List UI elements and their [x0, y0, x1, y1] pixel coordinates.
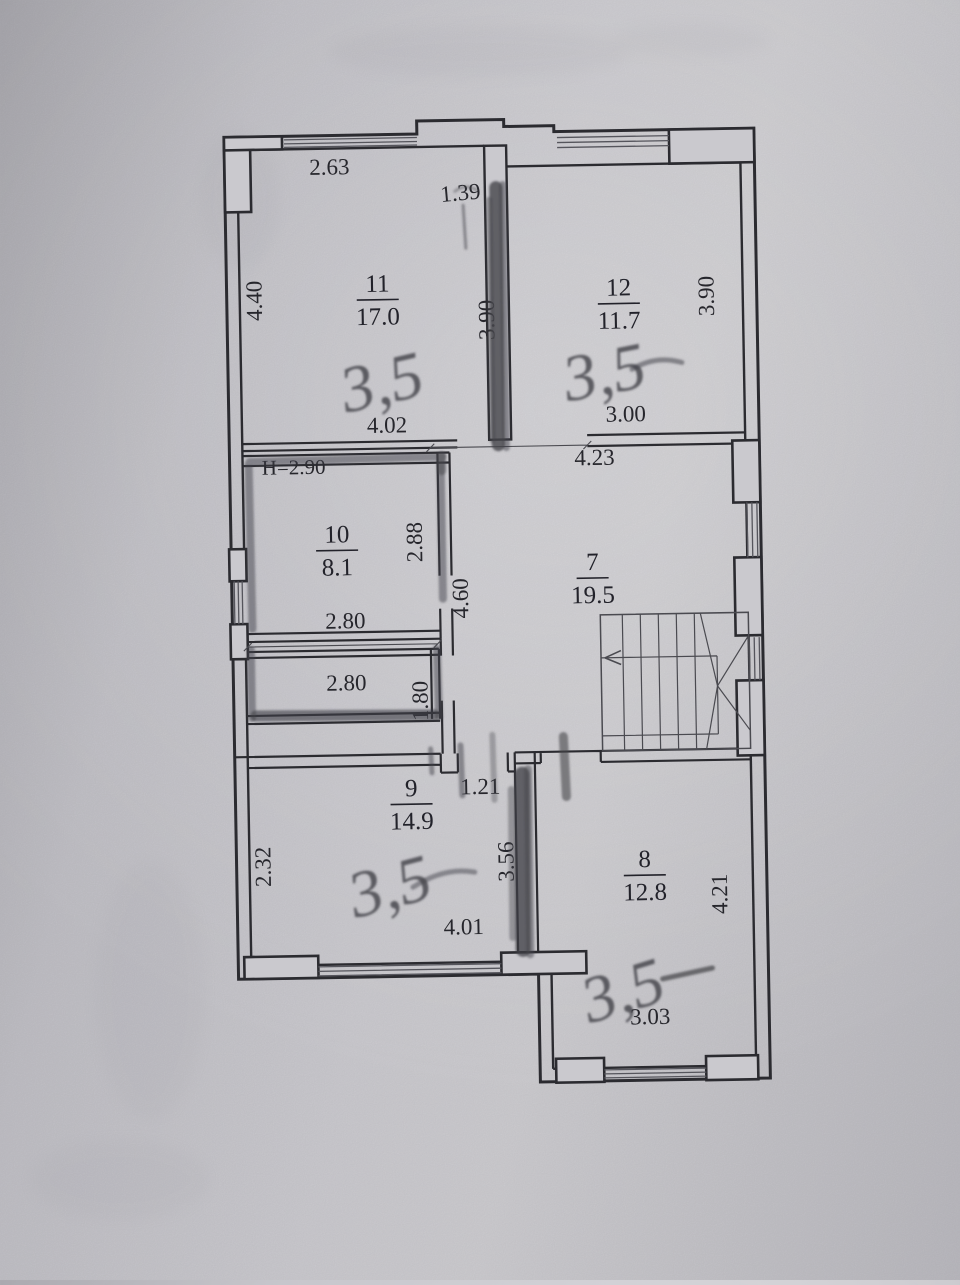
dim-top-niche-width: 1.39	[439, 179, 481, 207]
room-7-number: 7	[586, 549, 599, 576]
room-10-area: 8.1	[322, 554, 354, 582]
pencil-smudge-wall-11-12	[502, 185, 508, 448]
room-11-fraction-bar	[357, 299, 399, 300]
dim-room10-right-height: 2.88	[402, 522, 428, 563]
dim-hall-height: 4.60	[448, 578, 474, 619]
pencil-stroke	[431, 749, 432, 773]
dim-room12-right-height: 3.90	[693, 276, 719, 317]
room-10-number: 10	[324, 521, 349, 548]
pier	[230, 624, 248, 659]
pier	[706, 1055, 758, 1080]
room-9-fraction-bar	[391, 804, 433, 805]
dim-room9-bottom-width: 4.01	[443, 914, 484, 940]
floor-plan-svg: 2.63 1.39 4.40 3.90 4.02 3.90 3.00 4.23 …	[0, 0, 960, 1280]
dim-room11-left-height: 4.40	[241, 281, 267, 322]
pier	[556, 1058, 604, 1083]
dim-room10-bottom-width: 2.80	[325, 608, 366, 634]
dim-room9-left-height: 2.32	[250, 846, 276, 887]
pencil-smudge-wall-9-8	[510, 789, 514, 937]
pier	[224, 136, 282, 150]
pencil-trace-closet-bottom	[256, 713, 434, 718]
pencil-stroke	[563, 737, 566, 797]
room-11-number: 11	[365, 271, 390, 298]
pencil-stroke	[461, 745, 463, 795]
pencil-note-room12: 3,5	[556, 329, 652, 417]
room-9-number: 9	[405, 775, 418, 802]
room-12-number: 12	[606, 274, 631, 301]
dim-hall-top-width: 4.23	[574, 445, 615, 471]
room-8-fraction-bar	[624, 875, 666, 876]
pier	[229, 549, 247, 581]
pencil-smudge-wall-11-12	[488, 200, 493, 440]
room-8-area: 12.8	[623, 879, 667, 907]
room-8-number: 8	[638, 846, 651, 873]
dim-room8-right-height: 4.21	[707, 874, 733, 915]
pier	[669, 128, 755, 163]
room-7-fraction-bar	[577, 578, 609, 579]
pencil-trace-room10	[249, 464, 253, 629]
dim-room11-top-width: 2.63	[309, 154, 350, 180]
room-11-area: 17.0	[356, 303, 400, 331]
pencil-stroke	[492, 735, 494, 800]
room-10-fraction-bar	[316, 550, 358, 551]
pencil-trace-closet	[251, 650, 252, 718]
pier	[732, 440, 760, 502]
room-7-area: 19.5	[571, 582, 615, 610]
pier	[244, 956, 318, 979]
dim-closet-width: 2.80	[326, 670, 367, 696]
pencil-smudge-wall-11-12	[494, 188, 500, 445]
room-9-area: 14.9	[390, 808, 434, 836]
pencil-trace-closet	[437, 649, 439, 717]
pencil-trace-room10	[440, 457, 442, 599]
room-12-fraction-bar	[598, 303, 640, 304]
floor-plan-photo: 2.63 1.39 4.40 3.90 4.02 3.90 3.00 4.23 …	[0, 0, 960, 1280]
pencil-smudge-wall-9-8	[527, 769, 531, 954]
pencil-trace-room10	[250, 457, 443, 462]
